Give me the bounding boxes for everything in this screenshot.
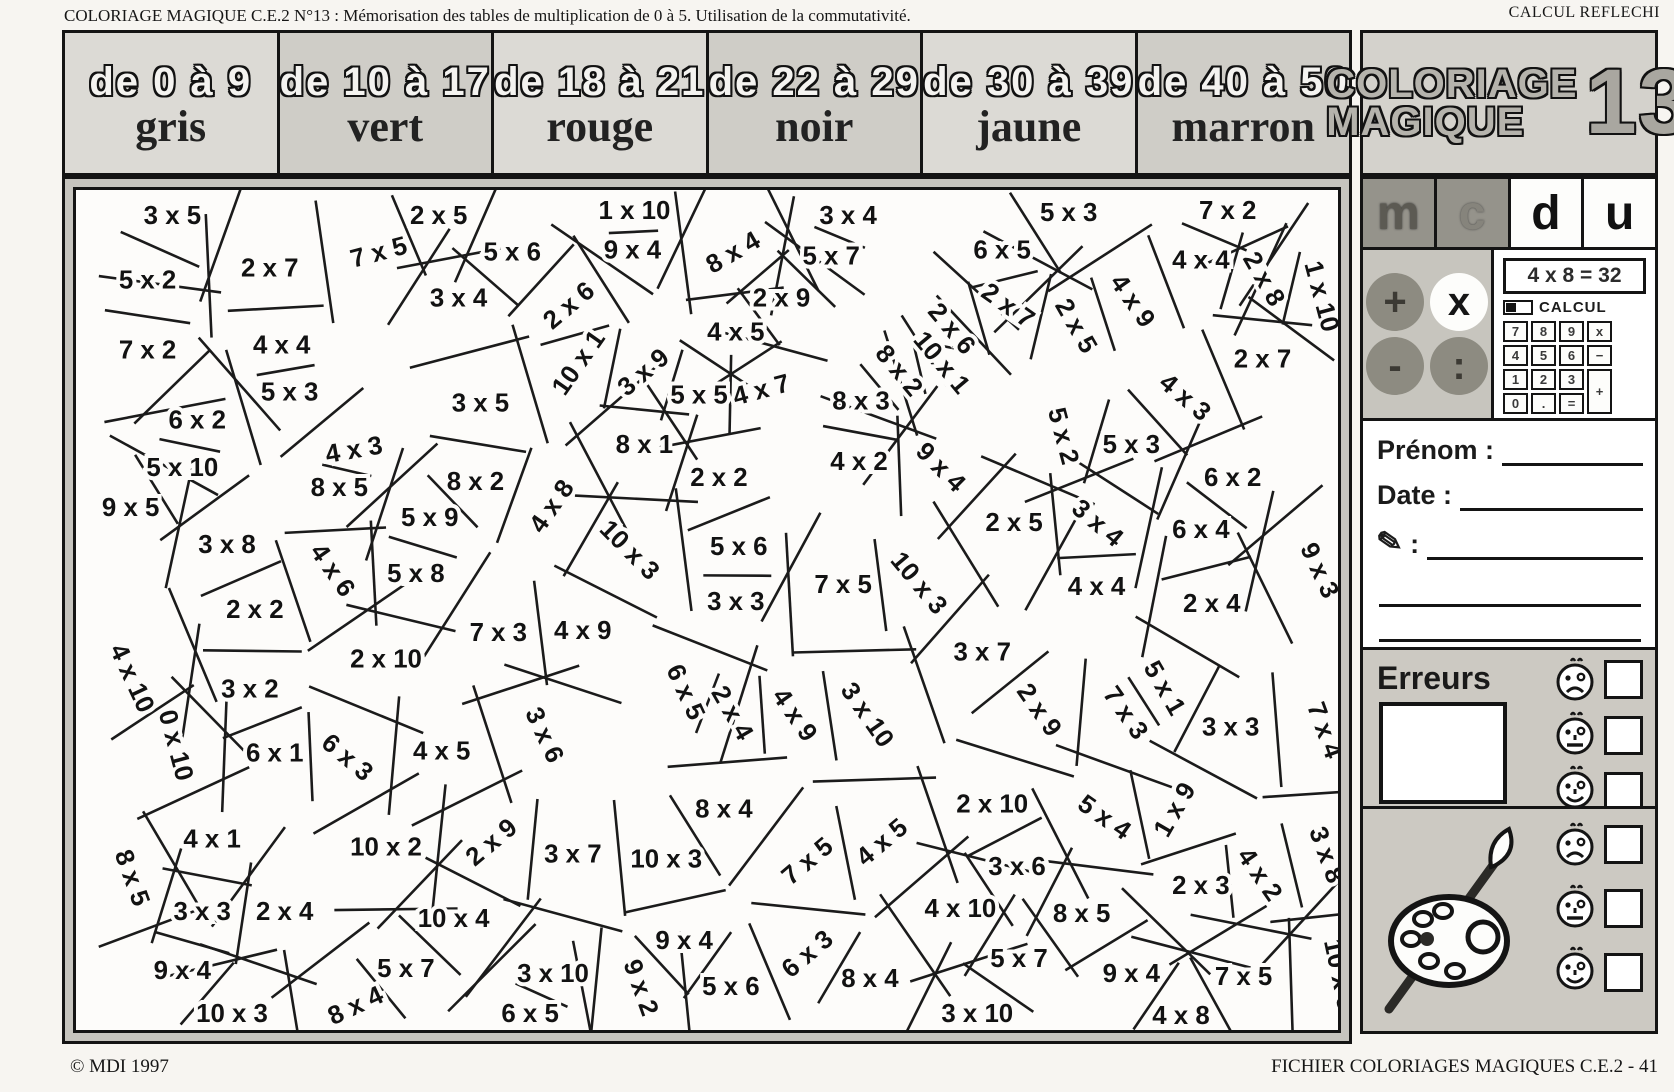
sad-face-icon bbox=[1553, 821, 1597, 869]
legend-cell-vert: de 10 à 17vert bbox=[280, 33, 495, 173]
coloriage-magique-logo: COLORIAGE MAGIQUE 13 bbox=[1360, 30, 1658, 176]
sad-face-icon bbox=[1553, 656, 1597, 704]
puzzle-cell-label[interactable]: 4 x 2 bbox=[830, 448, 887, 476]
puzzle-region-edge bbox=[1141, 833, 1236, 864]
place-value-u: u bbox=[1584, 179, 1655, 247]
puzzle-region-edge bbox=[904, 626, 945, 743]
puzzle-cell-label[interactable]: 2 x 9 bbox=[461, 813, 523, 872]
puzzle-cell-label[interactable]: 6 x 2 bbox=[169, 406, 226, 434]
date-input-line[interactable] bbox=[1460, 484, 1643, 511]
puzzle-cell-label[interactable]: 2 x 10 bbox=[350, 646, 422, 674]
puzzle-cell-label[interactable]: 5 x 1 bbox=[1138, 656, 1191, 720]
place-value-m: m bbox=[1363, 179, 1437, 247]
puzzle-region-edge bbox=[759, 676, 764, 754]
puzzle-region-edge bbox=[105, 310, 190, 323]
puzzle-cell-label[interactable]: 4 x 9 bbox=[766, 683, 822, 746]
puzzle-region-edge bbox=[688, 497, 770, 530]
erreurs-title: Erreurs bbox=[1377, 660, 1491, 697]
palette-brush-icon bbox=[1371, 819, 1541, 1024]
puzzle-cell-label[interactable]: 4 x 8 bbox=[524, 475, 580, 538]
calc-key-4: 4 bbox=[1503, 345, 1528, 366]
puzzle-region-edge bbox=[389, 537, 457, 558]
writing-line[interactable] bbox=[1379, 609, 1641, 642]
puzzle-cell-label[interactable]: 5 x 8 bbox=[387, 560, 444, 588]
puzzle-cell-label[interactable]: 2 x 5 bbox=[410, 202, 467, 230]
multiply-icon: x bbox=[1430, 273, 1488, 331]
title-input-line[interactable] bbox=[1427, 533, 1643, 560]
puzzle-cell-label[interactable]: 6 x 5 bbox=[501, 1000, 558, 1028]
puzzle-cell-label[interactable]: 3 x 3 bbox=[1202, 714, 1259, 742]
puzzle-region-edge bbox=[813, 778, 936, 782]
legend-color-name: jaune bbox=[976, 107, 1081, 147]
operation-symbols: + x - : bbox=[1363, 250, 1494, 418]
puzzle-region-edge bbox=[897, 416, 901, 516]
prenom-label: Prénom : bbox=[1377, 435, 1494, 466]
puzzle-region-edge bbox=[968, 818, 1042, 857]
puzzle-cell-label[interactable]: 9 x 3 bbox=[1294, 539, 1338, 603]
puzzle-cell-label[interactable]: 7 x 2 bbox=[1199, 197, 1256, 225]
calc-key-x: x bbox=[1587, 321, 1612, 342]
legend-cell-jaune: de 30 à 39jaune bbox=[923, 33, 1138, 173]
legend-range: de 40 à 50 bbox=[1138, 60, 1349, 105]
puzzle-region-edge bbox=[625, 890, 726, 912]
header-right-label: CALCUL REFLECHI bbox=[1509, 4, 1660, 22]
puzzle-cell-label[interactable]: 8 x 4 bbox=[695, 795, 753, 823]
coloring-checkboxes bbox=[1604, 825, 1643, 992]
sad-checkbox[interactable] bbox=[1604, 660, 1643, 699]
legend-cell-gris: de 0 à 9gris bbox=[65, 33, 280, 173]
neutral-face-icon bbox=[1553, 883, 1597, 931]
puzzle-cell-label[interactable]: 4 x 10 bbox=[924, 895, 996, 923]
calc-key-1: 1 bbox=[1503, 369, 1528, 390]
pencil-label: : bbox=[1410, 529, 1419, 560]
puzzle-cell-label[interactable]: 3 x 5 bbox=[452, 389, 509, 417]
puzzle-cell-label[interactable]: 10 x 4 bbox=[418, 905, 490, 933]
puzzle-cell-label[interactable]: 4 x 3 bbox=[323, 431, 384, 469]
puzzle-cell-label[interactable]: 9 x 4 bbox=[910, 437, 971, 498]
puzzle-cell-label[interactable]: 5 x 4 bbox=[1073, 790, 1137, 846]
place-value-d: d bbox=[1511, 179, 1585, 247]
calc-key-9: 9 bbox=[1559, 321, 1584, 342]
puzzle-cell-label[interactable]: 4 x 6 bbox=[304, 539, 360, 602]
puzzle-cell-label[interactable]: 6 x 1 bbox=[246, 739, 303, 767]
erreurs-count-box[interactable] bbox=[1379, 702, 1507, 804]
puzzle-cell-label[interactable]: 5 x 6 bbox=[484, 239, 541, 267]
place-value-row: m c d u bbox=[1360, 176, 1658, 250]
puzzle-cell-label[interactable]: 10 x 3 bbox=[885, 547, 953, 620]
puzzle-region-edge bbox=[668, 757, 787, 766]
puzzle-region-edge bbox=[513, 325, 548, 444]
puzzle-region-edge bbox=[1154, 416, 1262, 461]
puzzle-cell-label[interactable]: 5 x 5 bbox=[670, 381, 727, 409]
puzzle-region-edge bbox=[614, 800, 625, 916]
calc-key-.: . bbox=[1531, 393, 1556, 414]
puzzle-cell-label[interactable]: 7 x 5 bbox=[777, 832, 839, 891]
puzzle-cell-label[interactable]: 3 x 3 bbox=[707, 588, 764, 616]
happy-face-icon bbox=[1553, 945, 1597, 993]
happy-checkbox[interactable] bbox=[1604, 953, 1643, 992]
plus-icon: + bbox=[1366, 273, 1424, 331]
puzzle-cell-label[interactable]: 5 x 3 bbox=[1103, 431, 1160, 459]
puzzle-cell-label[interactable]: 7 x 3 bbox=[470, 619, 527, 647]
coloring-puzzle[interactable]: 3 x 52 x 51 x 103 x 45 x 37 x 25 x 22 x … bbox=[62, 176, 1352, 1044]
puzzle-region-edge bbox=[675, 191, 691, 314]
puzzle-region-edge bbox=[462, 666, 579, 704]
puzzle-cell-label[interactable]: 5 x 3 bbox=[1040, 199, 1097, 227]
pencil-icon: ✎ bbox=[1374, 523, 1405, 562]
puzzle-cell-label[interactable]: 2 x 2 bbox=[690, 464, 747, 492]
calc-key-6: 6 bbox=[1559, 345, 1584, 366]
calc-key-−: − bbox=[1587, 345, 1612, 366]
puzzle-cell-label[interactable]: 8 x 3 bbox=[832, 387, 889, 415]
puzzle-cell-label[interactable]: 4 x 9 bbox=[554, 617, 611, 645]
puzzle-region-edge bbox=[1057, 554, 1136, 558]
copyright: © MDI 1997 bbox=[70, 1056, 169, 1078]
coloring-faces bbox=[1553, 821, 1597, 993]
puzzle-cell-label[interactable]: 8 x 4 bbox=[841, 965, 899, 993]
puzzle-cell-label[interactable]: 2 x 9 bbox=[753, 285, 810, 313]
puzzle-cell-label[interactable]: 10 x 3 bbox=[196, 1000, 268, 1028]
puzzle-cell-label[interactable]: 5 x 9 bbox=[401, 504, 458, 532]
prenom-input-line[interactable] bbox=[1502, 439, 1643, 466]
legend-color-name: noir bbox=[775, 107, 853, 147]
footer-reference: FICHIER COLORIAGES MAGIQUES C.E.2 - 41 bbox=[1271, 1056, 1658, 1078]
puzzle-region-edge bbox=[503, 899, 622, 931]
puzzle-region-edge bbox=[223, 707, 302, 738]
puzzle-cell-label[interactable]: 4 x 5 bbox=[707, 318, 764, 346]
puzzle-cell-label[interactable]: 4 x 4 bbox=[1068, 573, 1126, 601]
calculator-brand-label: CALCUL bbox=[1539, 299, 1607, 316]
puzzle-region-edge bbox=[346, 605, 455, 631]
puzzle-cell-label[interactable]: 8 x 4 bbox=[701, 226, 765, 279]
puzzle-region-edge bbox=[1135, 467, 1161, 588]
puzzle-cell-label[interactable]: 3 x 8 bbox=[1303, 823, 1338, 887]
puzzle-region-edge bbox=[823, 671, 837, 760]
puzzle-region-edge bbox=[430, 436, 526, 452]
puzzle-region-edge bbox=[1056, 745, 1172, 787]
puzzle-cell-label[interactable]: 3 x 4 bbox=[1066, 494, 1128, 553]
erreurs-box: Erreurs bbox=[1360, 647, 1658, 809]
puzzle-cell-label[interactable]: 6 x 3 bbox=[316, 728, 378, 787]
puzzle-cell-label[interactable]: 3 x 7 bbox=[954, 639, 1011, 667]
puzzle-region-edge bbox=[1282, 823, 1302, 907]
puzzle-cell-label[interactable]: 10 x 3 bbox=[594, 515, 665, 586]
puzzle-cell-label[interactable]: 9 x 4 bbox=[655, 927, 713, 955]
puzzle-cell-label[interactable]: 2 x 7 bbox=[976, 278, 1039, 334]
puzzle-region-edge bbox=[786, 533, 793, 657]
right-panel: m c d u + x - : 4 x 8 = 32 CALCUL 789x45… bbox=[1360, 176, 1658, 1044]
puzzle-cell-label[interactable]: 2 x 2 bbox=[226, 596, 283, 624]
calc-key-5: 5 bbox=[1531, 345, 1556, 366]
puzzle-cell-label[interactable]: 1 x 10 bbox=[599, 197, 671, 225]
puzzle-cell-label[interactable]: 8 x 5 bbox=[1053, 900, 1110, 928]
puzzle-cell-label[interactable]: 3 x 2 bbox=[221, 676, 278, 704]
legend-color-name: marron bbox=[1172, 107, 1315, 147]
puzzle-region-edge bbox=[284, 950, 304, 1030]
puzzle-cell-label[interactable]: 2 x 9 bbox=[1011, 678, 1067, 741]
puzzle-cell-label[interactable]: 5 x 10 bbox=[146, 454, 218, 482]
date-label: Date : bbox=[1377, 480, 1452, 511]
operations-calculator-box: + x - : 4 x 8 = 32 CALCUL 789x456−1230.=… bbox=[1360, 247, 1658, 421]
puzzle-region-edge bbox=[257, 365, 315, 375]
puzzle-cell-label[interactable]: 7 x 2 bbox=[119, 336, 176, 364]
puzzle-region-edge bbox=[163, 868, 252, 885]
puzzle-cell-label[interactable]: 4 x 9 bbox=[1104, 269, 1160, 332]
calculator-brand: CALCUL bbox=[1503, 299, 1646, 316]
puzzle-region-edge bbox=[228, 306, 324, 311]
puzzle-region-edge bbox=[591, 927, 602, 1030]
puzzle-region-edge bbox=[309, 686, 423, 733]
legend-range: de 22 à 29 bbox=[709, 60, 920, 105]
puzzle-region-edge bbox=[1077, 659, 1086, 766]
puzzle-cell-label[interactable]: 3 x 10 bbox=[835, 678, 899, 753]
puzzle-region-edge bbox=[751, 903, 865, 915]
happy-face-icon bbox=[1553, 764, 1597, 812]
puzzle-cell-label[interactable]: 9 x 5 bbox=[102, 494, 159, 522]
legend-color-name: gris bbox=[135, 107, 206, 147]
legend-range: de 18 à 21 bbox=[494, 60, 705, 105]
puzzle-cell-label[interactable]: 5 x 6 bbox=[710, 533, 767, 561]
puzzle-region-edge bbox=[1032, 859, 1154, 874]
puzzle-region-edge bbox=[528, 799, 538, 900]
puzzle-region-edge bbox=[433, 784, 446, 907]
puzzle-region-edge bbox=[222, 688, 227, 812]
puzzle-cell-label[interactable]: 2 x 3 bbox=[1172, 872, 1229, 900]
legend-color-name: rouge bbox=[546, 107, 653, 147]
calc-key-=: = bbox=[1559, 393, 1584, 414]
page-title: COLORIAGE MAGIQUE C.E.2 N°13 : Mémorisat… bbox=[64, 6, 911, 26]
puzzle-cell-label[interactable]: 2 x 5 bbox=[985, 509, 1042, 537]
puzzle-region-edge bbox=[823, 426, 897, 440]
legend-cell-rouge: de 18 à 21rouge bbox=[494, 33, 709, 173]
puzzle-cell-label[interactable]: 4 x 4 bbox=[253, 331, 311, 359]
puzzle-cell-label[interactable]: 5 x 7 bbox=[802, 243, 859, 271]
puzzle-cell-label[interactable]: 8 x 5 bbox=[109, 846, 155, 910]
puzzle-cell-label[interactable]: 3 x 6 bbox=[519, 703, 569, 767]
puzzle-region-edge bbox=[1130, 770, 1149, 859]
puzzle-cell-label[interactable]: 10 x 3 bbox=[630, 845, 702, 873]
puzzle-cell-label[interactable]: 4 x 2 bbox=[1232, 843, 1288, 906]
legend-color-name: vert bbox=[347, 107, 423, 147]
calculator-keypad: 789x456−1230.=+ bbox=[1503, 321, 1646, 414]
puzzle-region-edge bbox=[917, 766, 957, 883]
puzzle-cell-label[interactable]: 7 x 5 bbox=[814, 571, 871, 599]
puzzle-cell-label[interactable]: 8 x 2 bbox=[447, 468, 504, 496]
legend-range: de 10 à 17 bbox=[280, 60, 491, 105]
puzzle-cell-label[interactable]: 7 x 3 bbox=[1097, 681, 1153, 744]
minus-icon: - bbox=[1366, 337, 1424, 395]
logo-line2: MAGIQUE bbox=[1326, 103, 1577, 141]
puzzle-region-edge bbox=[313, 773, 418, 833]
puzzle-cell-label[interactable]: 6 x 3 bbox=[777, 925, 839, 984]
puzzle-cell-label[interactable]: 3 x 4 bbox=[819, 202, 877, 230]
puzzle-region-edge bbox=[534, 581, 547, 685]
writing-line[interactable] bbox=[1379, 574, 1641, 607]
neutral-face-icon bbox=[1553, 710, 1597, 758]
calc-key-8: 8 bbox=[1531, 321, 1556, 342]
puzzle-cell-label[interactable]: 2 x 7 bbox=[241, 255, 298, 283]
puzzle-cell-label[interactable]: 4 x 8 bbox=[1152, 1002, 1209, 1030]
puzzle-cell-label[interactable]: 9 x 2 bbox=[618, 956, 664, 1020]
puzzle-region-edge bbox=[226, 350, 261, 465]
puzzle-cell-label[interactable]: 1 x 9 bbox=[1149, 778, 1202, 842]
puzzle-region-edge bbox=[730, 355, 732, 433]
divide-icon: : bbox=[1430, 337, 1488, 395]
calc-key-2: 2 bbox=[1531, 369, 1556, 390]
puzzle-cell-label[interactable]: 5 x 2 bbox=[119, 267, 176, 295]
puzzle-region-edge bbox=[1150, 741, 1257, 799]
puzzle-cell-label[interactable]: 2 x 4 bbox=[256, 898, 314, 926]
puzzle-cell-label[interactable]: 2 x 4 bbox=[1183, 590, 1241, 618]
legend-range: de 0 à 9 bbox=[89, 60, 252, 105]
puzzle-cell-label[interactable]: 3 x 6 bbox=[988, 853, 1045, 881]
puzzle-cell-label[interactable]: 7 x 4 bbox=[1301, 698, 1338, 762]
puzzle-region-edge bbox=[676, 488, 692, 611]
legend-cell-marron: de 40 à 50marron bbox=[1138, 33, 1350, 173]
puzzle-cell-label[interactable]: 4 x 4 bbox=[1172, 247, 1230, 275]
puzzle-region-edge bbox=[389, 696, 399, 815]
logo-line1: COLORIAGE bbox=[1326, 65, 1577, 103]
puzzle-region-edge bbox=[309, 712, 313, 801]
puzzle-region-edge bbox=[1263, 789, 1338, 797]
puzzle-cell-label[interactable]: 5 x 3 bbox=[261, 378, 318, 406]
puzzle-cell-label[interactable]: 4 x 5 bbox=[851, 813, 913, 872]
erreurs-faces bbox=[1553, 656, 1597, 812]
calc-key-plus: + bbox=[1587, 369, 1612, 414]
puzzle-cell-label[interactable]: 9 x 4 bbox=[1103, 960, 1161, 988]
puzzle-cell-label[interactable]: 7 x 5 bbox=[1215, 963, 1272, 991]
coloring-quality-box bbox=[1360, 806, 1658, 1034]
puzzle-region-edge bbox=[201, 561, 281, 596]
puzzle-cell-label[interactable]: 5 x 7 bbox=[377, 955, 434, 983]
puzzle-region-edge bbox=[575, 496, 698, 502]
puzzle-cell-label[interactable]: 2 x 8 bbox=[1237, 247, 1290, 311]
puzzle-cell-label[interactable]: 3 x 9 bbox=[613, 343, 675, 402]
puzzle-region-edge bbox=[666, 415, 697, 511]
puzzle-cell-label[interactable]: 4 x 1 bbox=[183, 825, 240, 853]
puzzle-region-edge bbox=[1142, 536, 1166, 657]
puzzle-region-edge bbox=[875, 539, 887, 631]
puzzle-region-edge bbox=[166, 467, 192, 588]
puzzle-cell-label[interactable]: 9 x 4 bbox=[154, 957, 212, 985]
puzzle-region-edge bbox=[653, 625, 768, 670]
puzzle-cell-label[interactable]: 5 x 7 bbox=[990, 945, 1047, 973]
puzzle-region-edge bbox=[121, 232, 200, 267]
puzzle-region-edge bbox=[1162, 557, 1251, 580]
logo-number: 13 bbox=[1585, 66, 1674, 140]
puzzle-region-edge bbox=[1169, 901, 1275, 965]
puzzle-region-edge bbox=[972, 271, 1038, 287]
calculator-display: 4 x 8 = 32 bbox=[1503, 258, 1646, 294]
calc-key-3: 3 bbox=[1559, 369, 1584, 390]
puzzle-cell-label[interactable]: 3 x 10 bbox=[517, 960, 589, 988]
calc-key-7: 7 bbox=[1503, 321, 1528, 342]
neutral-checkbox[interactable] bbox=[1604, 889, 1643, 928]
calculator-icon bbox=[1503, 300, 1533, 315]
puzzle-region-edge bbox=[159, 439, 220, 452]
puzzle-cell-label[interactable]: 8 x 4 bbox=[324, 981, 388, 1030]
puzzle-cell-label[interactable]: 6 x 5 bbox=[973, 237, 1030, 265]
puzzle-cell-label[interactable]: 6 x 4 bbox=[1172, 516, 1230, 544]
puzzle-cell-label[interactable]: 2 x 7 bbox=[1234, 345, 1291, 373]
calc-key-0: 0 bbox=[1503, 393, 1528, 414]
puzzle-cell-label[interactable]: 10 x 1 bbox=[547, 325, 611, 400]
puzzle-region-edge bbox=[793, 649, 916, 652]
puzzle-cell-label[interactable]: 10 x 5 bbox=[1318, 937, 1338, 1013]
puzzle-region-edge bbox=[410, 336, 529, 367]
puzzle-cell-label[interactable]: 0 x 10 bbox=[153, 707, 199, 784]
puzzle-cell-label[interactable]: 5 x 6 bbox=[702, 973, 759, 1001]
puzzle-cell-label[interactable]: 3 x 5 bbox=[144, 202, 201, 230]
puzzle-cell-label[interactable]: 4 x 5 bbox=[413, 737, 470, 765]
puzzle-canvas[interactable]: 3 x 52 x 51 x 103 x 45 x 37 x 25 x 22 x … bbox=[73, 187, 1341, 1033]
neutral-checkbox[interactable] bbox=[1604, 716, 1643, 755]
puzzle-cell-label[interactable]: 8 x 5 bbox=[311, 474, 368, 502]
puzzle-cell-label[interactable]: 8 x 1 bbox=[616, 431, 673, 459]
sad-checkbox[interactable] bbox=[1604, 825, 1643, 864]
puzzle-cell-label[interactable]: 4 x 7 bbox=[730, 369, 793, 411]
legend-cell-noir: de 22 à 29noir bbox=[709, 33, 924, 173]
puzzle-cell-label[interactable]: 3 x 4 bbox=[430, 285, 488, 313]
puzzle-region-edge bbox=[1246, 491, 1274, 612]
puzzle-cell-label[interactable]: 2 x 10 bbox=[956, 790, 1028, 818]
puzzle-cell-label[interactable]: 5 x 2 bbox=[1042, 405, 1084, 468]
puzzle-cell-label[interactable]: 2 x 5 bbox=[1049, 294, 1102, 358]
puzzle-region-edge bbox=[203, 650, 302, 651]
place-value-c: c bbox=[1437, 179, 1511, 247]
puzzle-cell-label[interactable]: 4 x 10 bbox=[104, 640, 160, 717]
puzzle-cell-label[interactable]: 6 x 2 bbox=[1204, 464, 1261, 492]
puzzle-cell-label[interactable]: 4 x 3 bbox=[1154, 368, 1216, 427]
puzzle-cell-label[interactable]: 3 x 7 bbox=[544, 840, 601, 868]
puzzle-cell-label[interactable]: 3 x 8 bbox=[198, 531, 255, 559]
puzzle-cell-label[interactable]: 6 x 5 bbox=[660, 660, 710, 724]
logo-words: COLORIAGE MAGIQUE bbox=[1326, 65, 1577, 141]
puzzle-region-edge bbox=[152, 849, 181, 944]
puzzle-cell-label[interactable]: 2 x 6 bbox=[538, 277, 600, 336]
legend-range: de 30 à 39 bbox=[923, 60, 1134, 105]
identity-box: Prénom : Date : ✎ : bbox=[1360, 418, 1658, 650]
puzzle-cell-label[interactable]: 2 x 4 bbox=[705, 681, 758, 745]
color-legend: de 0 à 9grisde 10 à 17vertde 18 à 21roug… bbox=[62, 30, 1352, 176]
puzzle-cell-label[interactable]: 10 x 2 bbox=[350, 833, 422, 861]
puzzle-region-edge bbox=[1272, 672, 1281, 787]
puzzle-cell-label[interactable]: 3 x 3 bbox=[173, 898, 230, 926]
erreurs-checkboxes bbox=[1604, 660, 1643, 811]
puzzle-region-edge bbox=[1213, 315, 1312, 325]
puzzle-cell-label[interactable]: 9 x 4 bbox=[604, 237, 662, 265]
calculator-graphic: 4 x 8 = 32 CALCUL 789x456−1230.=+ bbox=[1494, 250, 1655, 418]
puzzle-cell-label[interactable]: 3 x 10 bbox=[941, 1000, 1013, 1028]
puzzle-region-edge bbox=[609, 231, 658, 233]
